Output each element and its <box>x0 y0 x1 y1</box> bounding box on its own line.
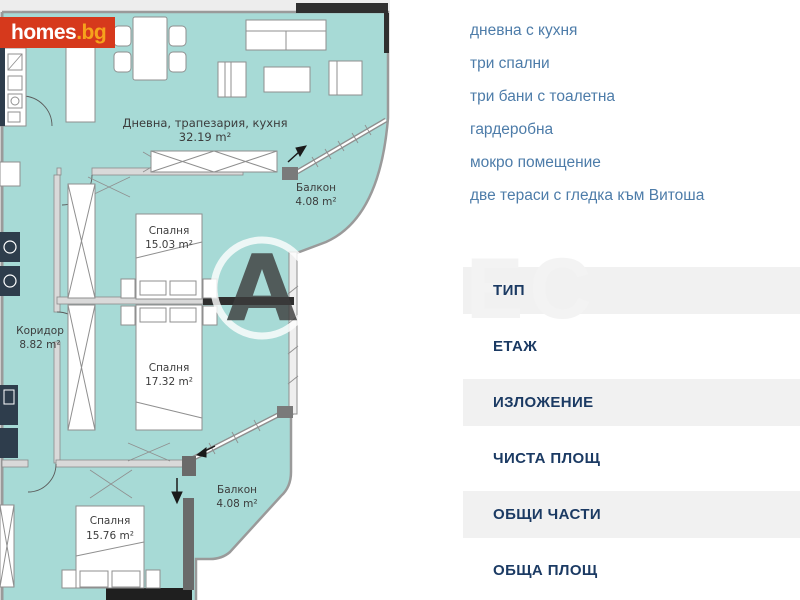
feature-item: три спални <box>470 47 704 80</box>
nightstand <box>62 570 76 588</box>
room-area-bedroom3: 15.76 m² <box>86 530 134 542</box>
room-area-bedroom2: 17.32 m² <box>145 376 193 388</box>
dining-table <box>133 17 167 80</box>
listing-page: Дневна, трапезария, кухня 32.19 m² Балко… <box>0 0 800 600</box>
tv-unit <box>151 151 277 172</box>
wall-junction-1 <box>282 167 298 180</box>
room-area-bedroom1: 15.03 m² <box>145 239 193 251</box>
room-label-corridor: Коридор <box>16 325 64 337</box>
spec-row-type: ТИП <box>463 267 800 314</box>
feature-item: гардеробна <box>470 113 704 146</box>
kitchen-unit <box>0 48 26 126</box>
floorplan: Дневна, трапезария, кухня 32.19 m² Балко… <box>0 0 400 600</box>
room-area-corridor: 8.82 m² <box>19 339 60 351</box>
feature-item: две тераси с гледка към Витоша <box>470 179 704 212</box>
spec-row-net-area: ЧИСТА ПЛОЩ <box>463 435 800 482</box>
spec-row-floor: ЕТАЖ <box>463 323 800 370</box>
room-label-living: Дневна, трапезария, кухня <box>122 116 287 130</box>
spec-table: ТИП ЕТАЖ ИЗЛОЖЕНИЕ ЧИСТА ПЛОЩ ОБЩИ ЧАСТИ… <box>463 267 800 600</box>
dark-wall-bottom <box>106 588 192 600</box>
room-label-bedroom1: Спалня <box>149 225 190 237</box>
cabinet <box>66 40 95 122</box>
dark-wall-right <box>384 13 389 53</box>
room-area-balcony1: 4.08 m² <box>295 196 336 208</box>
room-label-bedroom3: Спалня <box>90 515 131 527</box>
spec-row-total-area: ОБЩА ПЛОЩ <box>463 547 800 594</box>
room-label-balcony2: Балкон <box>217 484 257 496</box>
logo-text-main: homes <box>11 21 76 44</box>
watermark-logo: A <box>214 235 310 342</box>
logo-text-suffix: .bg <box>76 21 106 44</box>
side-unit <box>218 62 246 97</box>
nightstand <box>203 306 217 325</box>
room-label-bedroom2: Спалня <box>149 362 190 374</box>
chair <box>114 26 131 46</box>
nightstand <box>146 570 160 588</box>
chair <box>169 26 186 46</box>
homes-bg-logo[interactable]: homes.bg <box>0 17 115 48</box>
feature-item: три бани с тоалетна <box>470 80 704 113</box>
wall-junction-3 <box>182 456 196 476</box>
watermark-letter: A <box>226 235 297 342</box>
wall-bedroom3-right <box>183 498 194 590</box>
dark-wall-top <box>296 3 388 13</box>
armchair <box>329 61 362 95</box>
floorplan-drawing: Дневна, трапезария, кухня 32.19 m² Балко… <box>0 0 400 600</box>
room-label-balcony1: Балкон <box>296 182 336 194</box>
coffee-table <box>264 67 310 92</box>
chair <box>114 52 131 72</box>
room-area-balcony2: 4.08 m² <box>216 498 257 510</box>
nightstand <box>121 306 135 325</box>
spec-row-common-parts: ОБЩИ ЧАСТИ <box>463 491 800 538</box>
wall-junction-2 <box>277 406 293 418</box>
feature-item: дневна с кухня <box>470 14 704 47</box>
room-area-living: 32.19 m² <box>179 130 231 144</box>
nightstand <box>121 279 135 298</box>
chair <box>169 52 186 72</box>
feature-list: дневна с кухня три спални три бани с тоа… <box>470 14 704 212</box>
feature-item: мокро помещение <box>470 146 704 179</box>
bedroom2-furniture <box>68 305 217 430</box>
spec-row-exposure: ИЗЛОЖЕНИЕ <box>463 379 800 426</box>
